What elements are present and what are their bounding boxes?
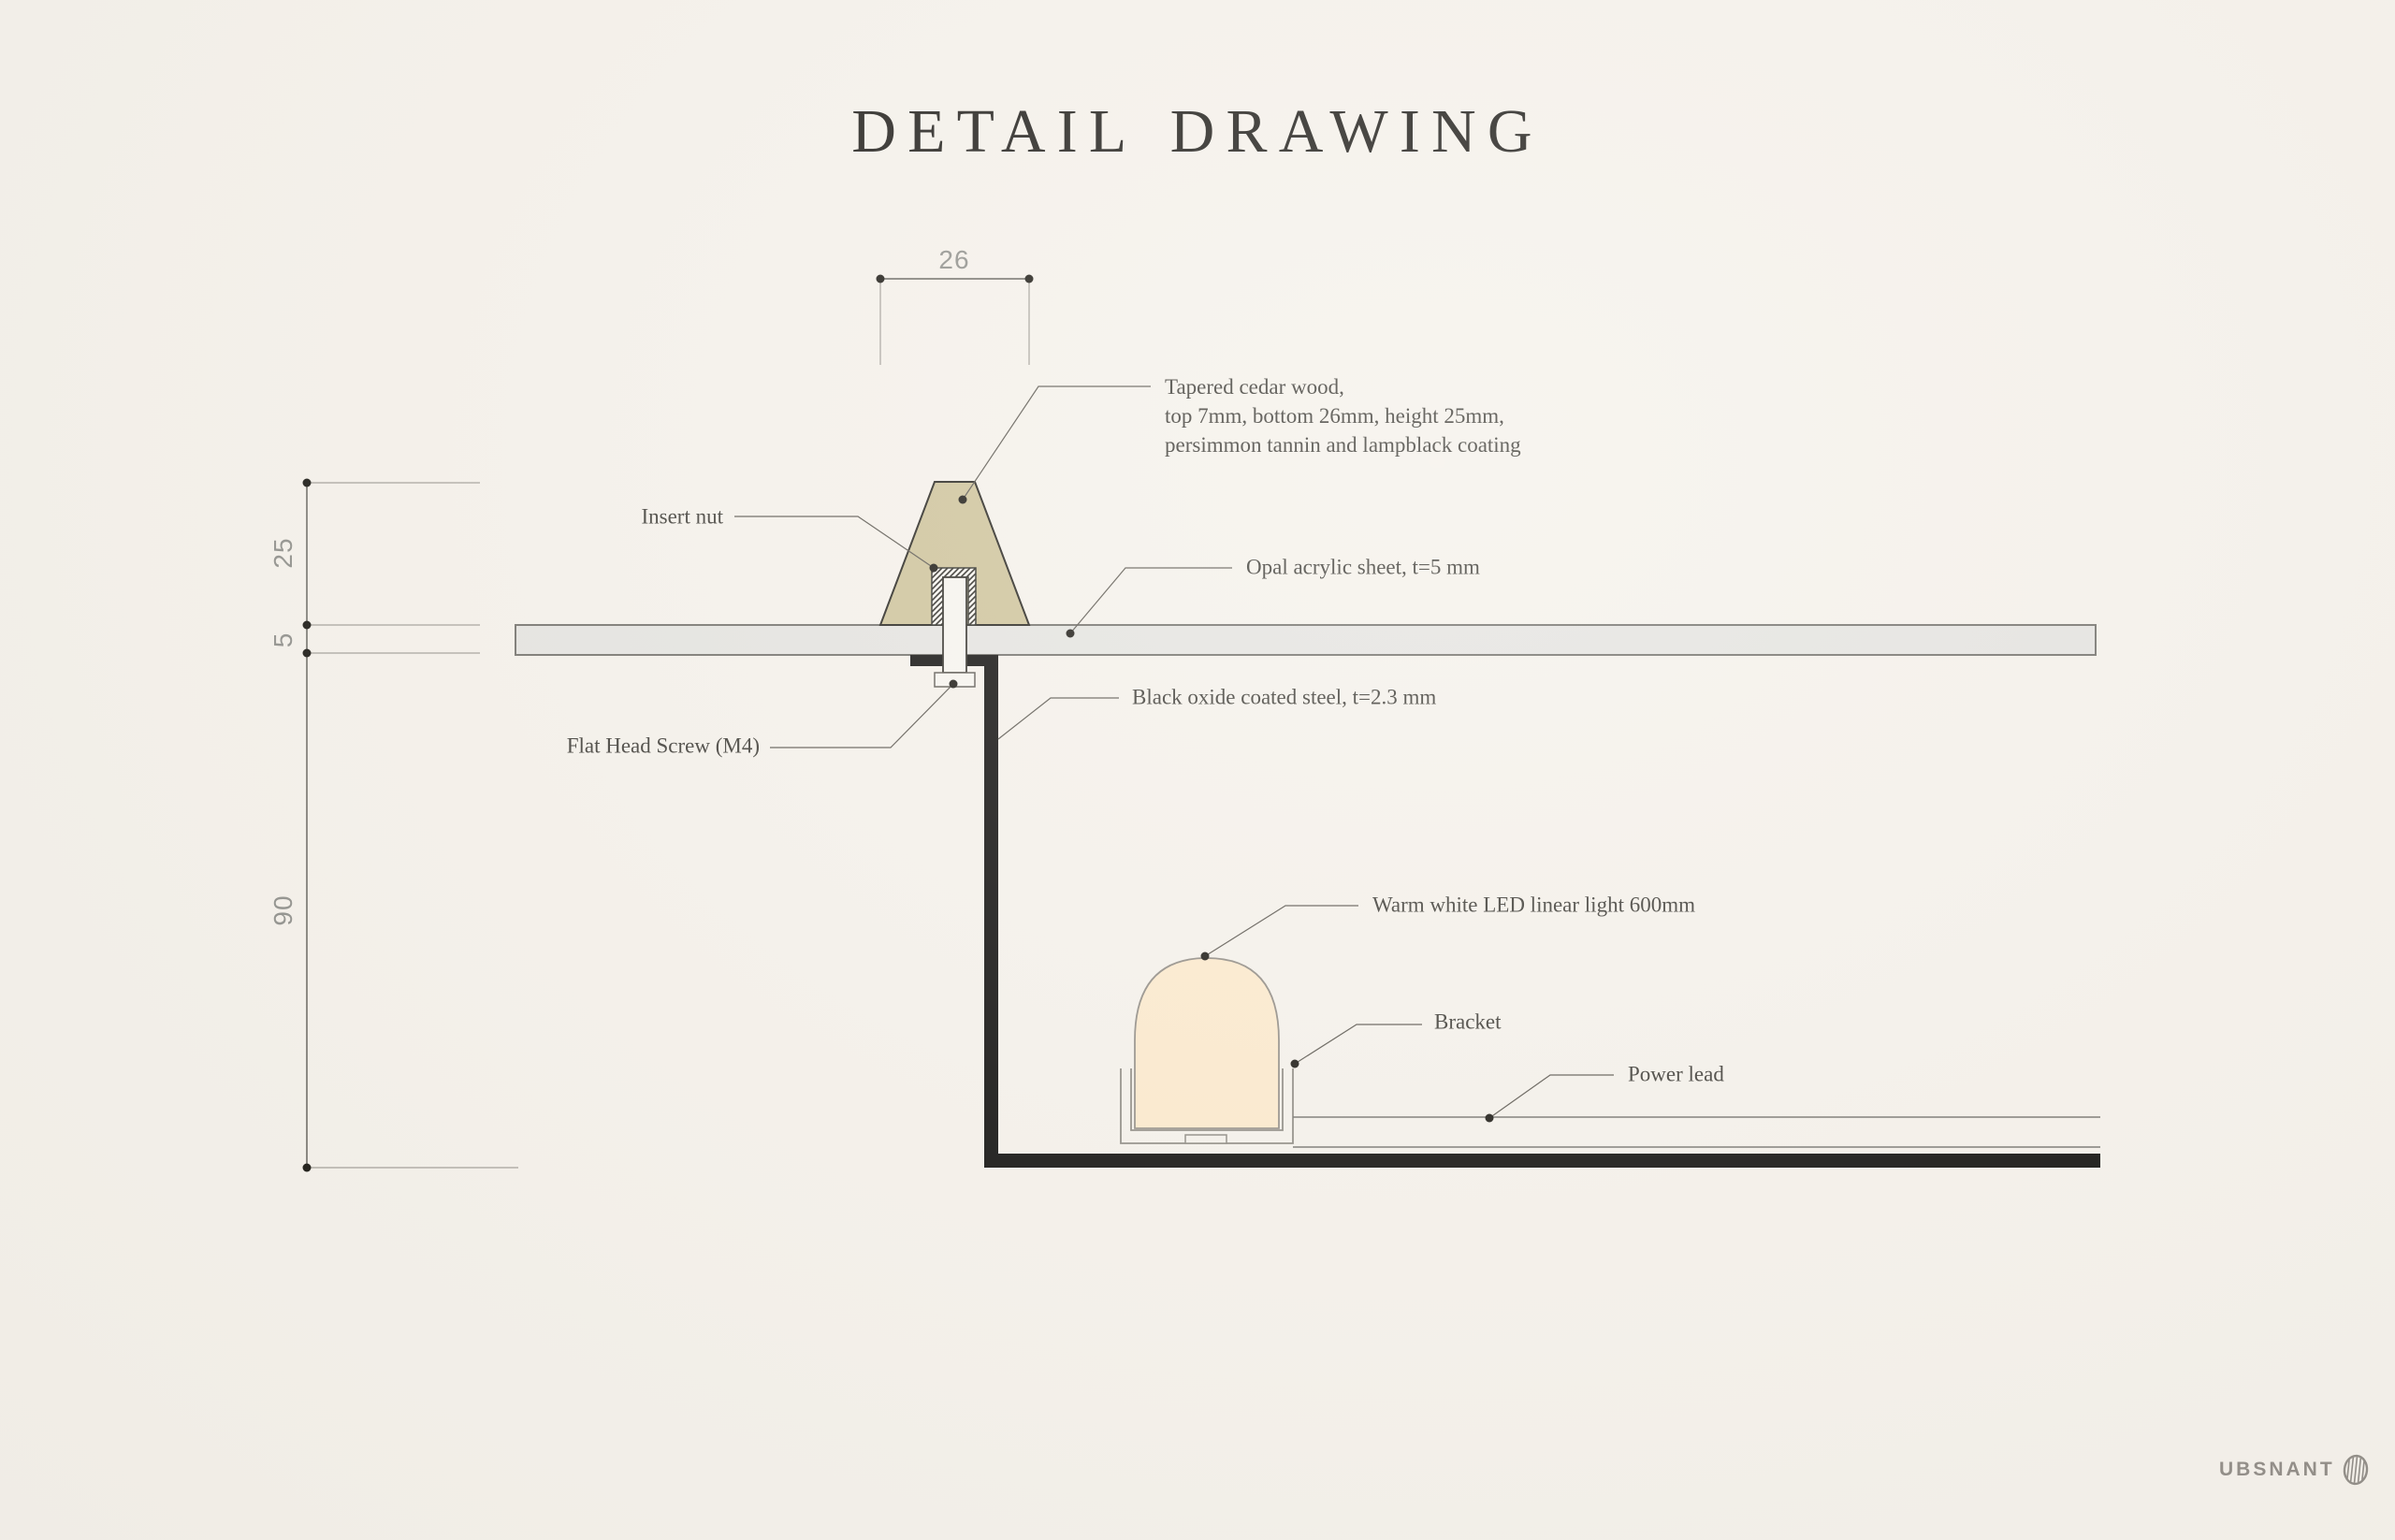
leader-dot: [1067, 630, 1075, 638]
label-power-lead: Power lead: [1628, 1060, 1724, 1089]
technical-drawing: [0, 0, 2395, 1540]
leader-steel: [998, 698, 1119, 739]
steel-channel-bottom: [984, 1154, 2100, 1168]
label-bracket: Bracket: [1434, 1008, 1502, 1037]
dimension-dot: [303, 621, 312, 630]
leader-bracket: [1295, 1024, 1422, 1064]
leader-dot: [1291, 1060, 1299, 1068]
dimension-dot: [877, 275, 885, 283]
label-acrylic: Opal acrylic sheet, t=5 mm: [1246, 553, 1480, 582]
logo: UBSNANT: [2219, 1454, 2370, 1486]
leader-dot: [959, 496, 967, 504]
leader-insert-nut: [734, 516, 934, 568]
steel-channel-vertical: [984, 655, 998, 1168]
leader-screw: [770, 684, 953, 748]
logo-wood-grain-icon: [2342, 1454, 2370, 1486]
label-cedar: Tapered cedar wood, top 7mm, bottom 26mm…: [1165, 372, 1521, 459]
leader-power-lead: [1489, 1075, 1614, 1118]
leader-led: [1205, 906, 1358, 956]
leader-acrylic: [1070, 568, 1232, 633]
leader-dot: [950, 680, 958, 689]
dimension-dot: [303, 1164, 312, 1172]
detail-drawing-canvas: DETAIL DRAWING 26 25 5 90 Tapered cedar …: [0, 0, 2395, 1540]
dimension-cavity-depth: 90: [269, 894, 298, 925]
label-steel: Black oxide coated steel, t=2.3 mm: [1132, 683, 1436, 712]
dimension-dot: [303, 649, 312, 658]
leader-dot: [1486, 1114, 1494, 1123]
acrylic-sheet: [515, 625, 2096, 655]
label-cedar-line1: Tapered cedar wood,: [1165, 372, 1521, 401]
screw-shaft: [943, 577, 966, 673]
leader-dot: [930, 564, 938, 573]
label-screw: Flat Head Screw (M4): [567, 732, 760, 761]
dimension-wood-height: 25: [269, 537, 298, 568]
label-cedar-line3: persimmon tannin and lampblack coating: [1165, 430, 1521, 459]
leader-cedar: [963, 386, 1151, 500]
dimension-dot: [1025, 275, 1034, 283]
label-led: Warm white LED linear light 600mm: [1372, 891, 1695, 920]
dimension-dot: [303, 479, 312, 487]
steel-plate-left: [910, 655, 943, 666]
label-insert-nut: Insert nut: [641, 502, 723, 531]
dimension-acrylic-thickness: 5: [269, 632, 298, 648]
bracket-clip: [1185, 1135, 1227, 1143]
leader-dot: [1201, 952, 1210, 961]
label-cedar-line2: top 7mm, bottom 26mm, height 25mm,: [1165, 401, 1521, 430]
page-title: DETAIL DRAWING: [0, 96, 2395, 167]
logo-text: UBSNANT: [2219, 1459, 2335, 1481]
dimension-top-width: 26: [938, 245, 969, 275]
led-lamp: [1135, 958, 1279, 1128]
